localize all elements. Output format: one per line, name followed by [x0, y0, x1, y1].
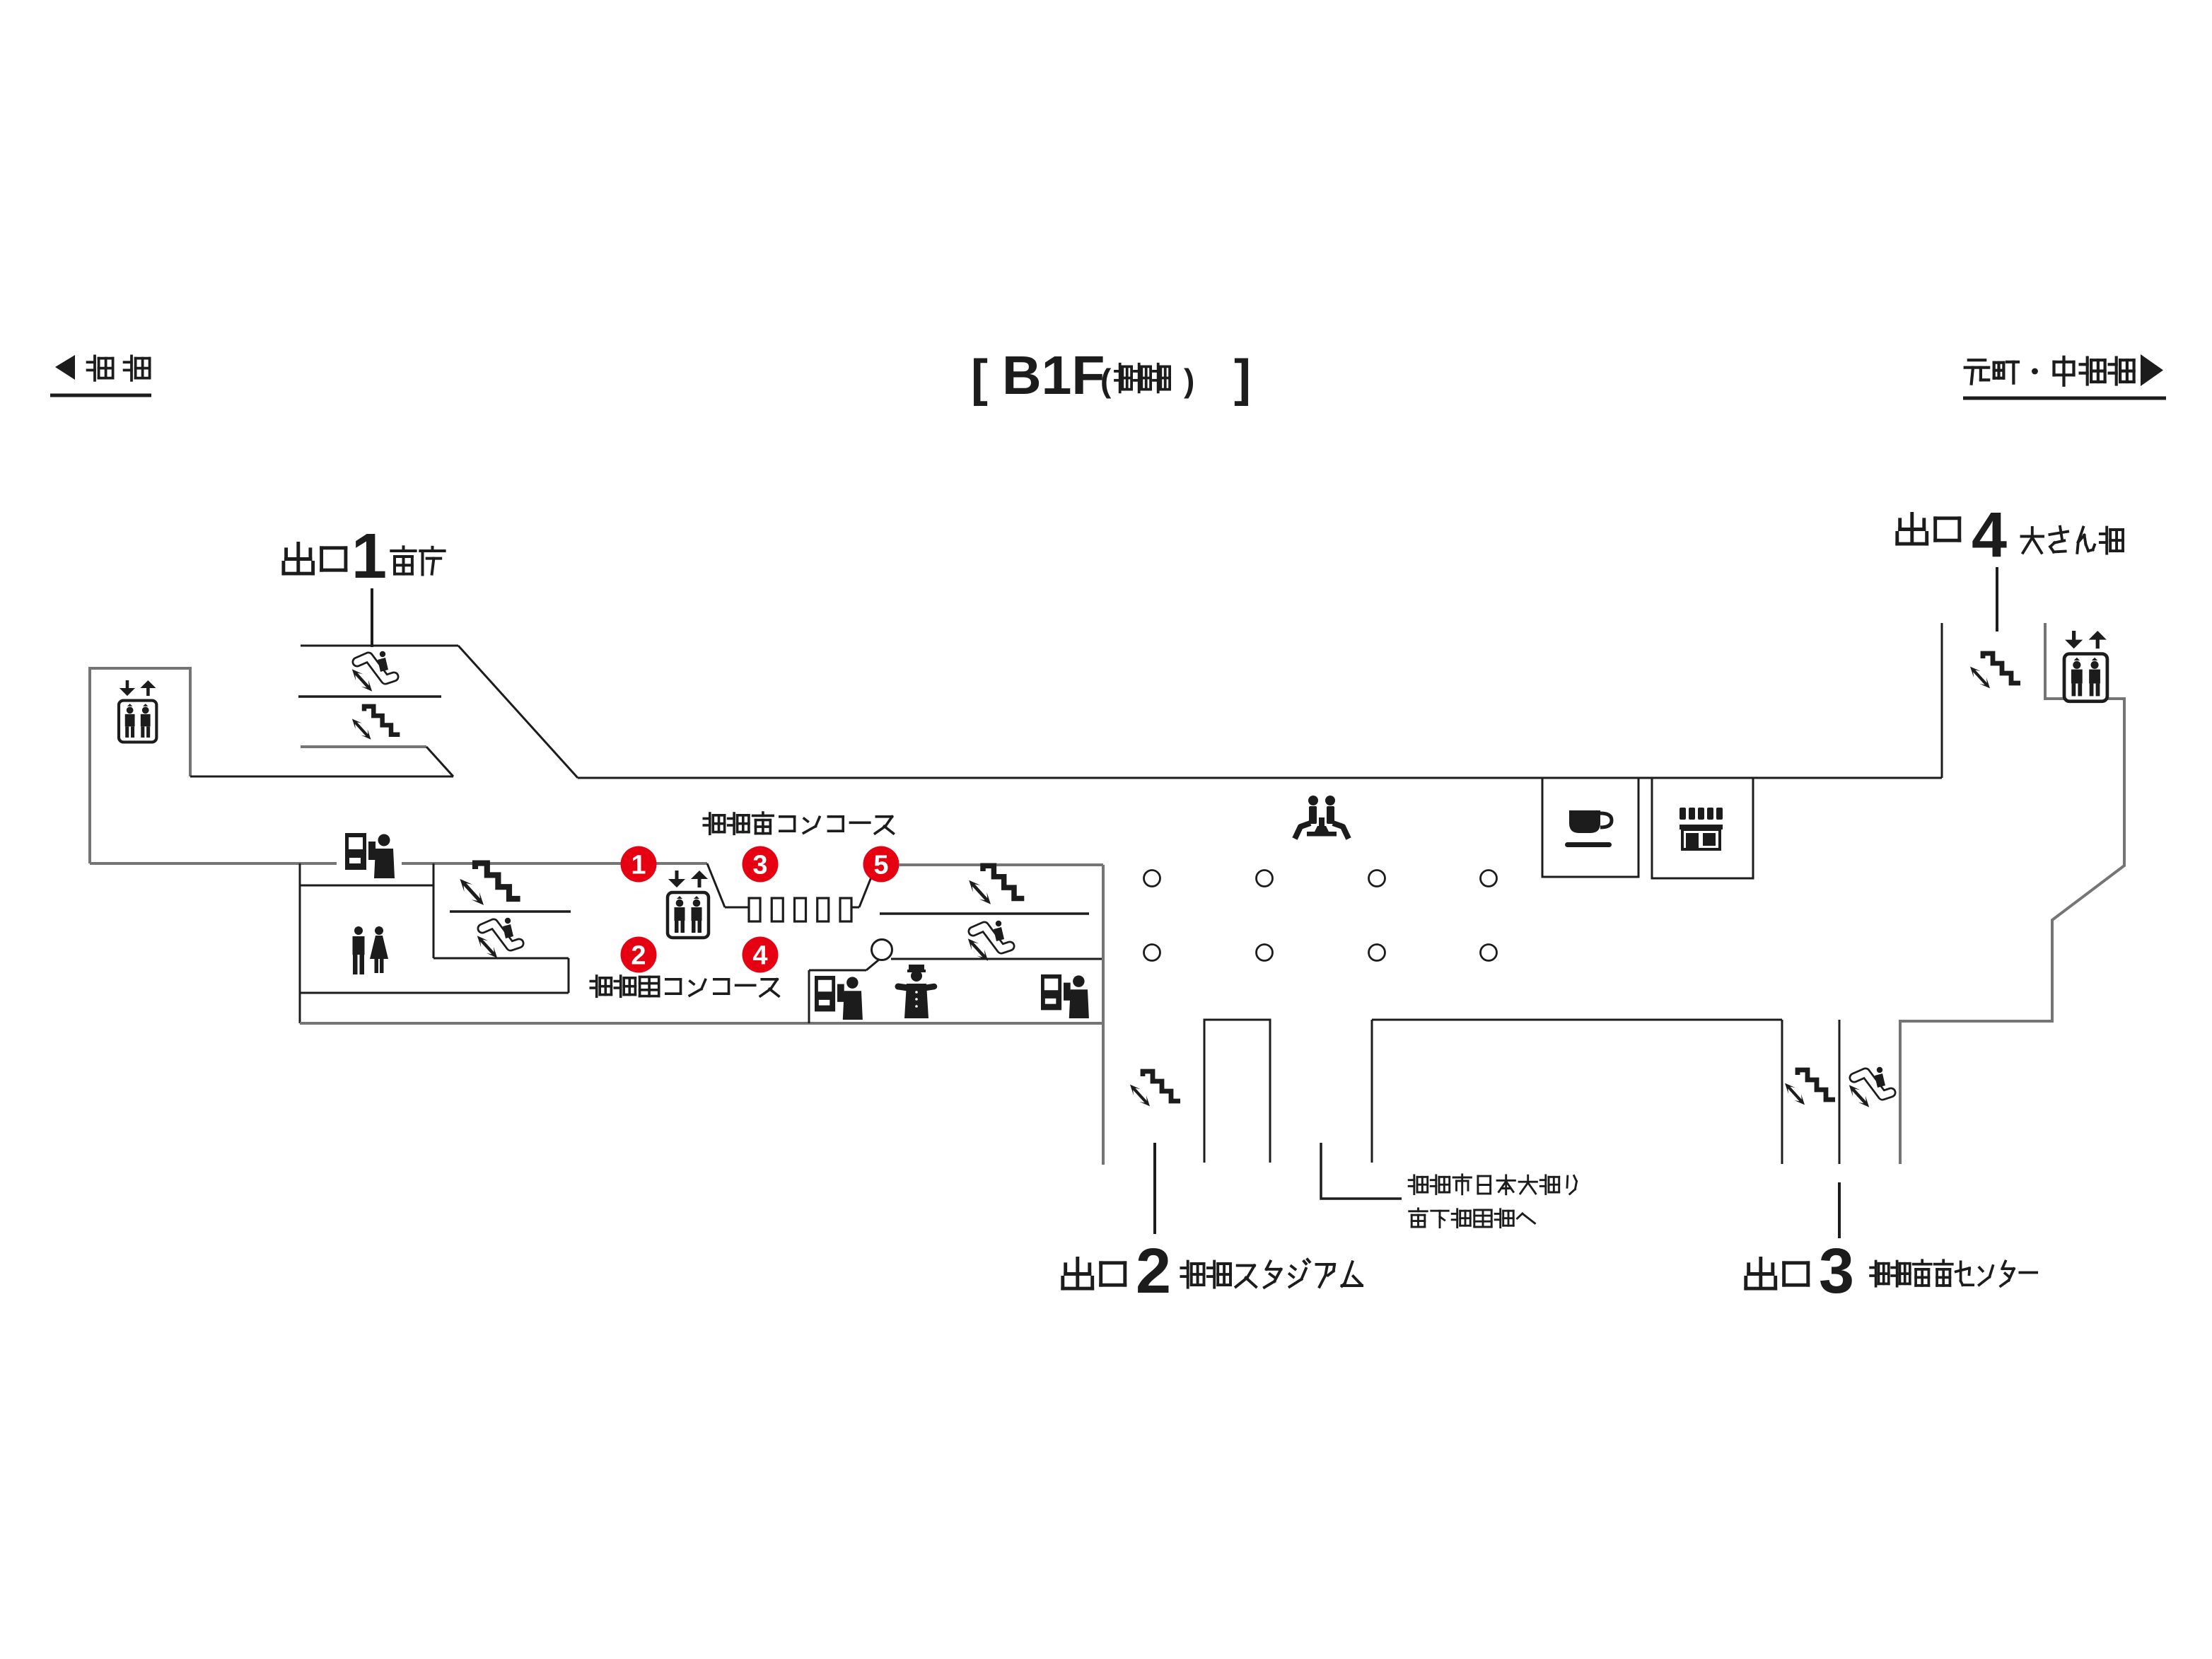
svg-text:5: 5: [873, 851, 888, 880]
svg-text:4: 4: [752, 941, 767, 971]
svg-text:4: 4: [1972, 500, 2007, 571]
svg-text:B1F: B1F: [1002, 345, 1105, 406]
svg-text:]: ]: [1234, 350, 1251, 407]
svg-text:1: 1: [351, 521, 387, 592]
svg-text:[: [: [971, 350, 988, 407]
svg-text:3: 3: [1819, 1236, 1854, 1307]
svg-text:): ): [1184, 362, 1194, 399]
svg-text:(: (: [1100, 362, 1112, 399]
svg-text:2: 2: [1136, 1236, 1171, 1307]
svg-text:3: 3: [752, 851, 767, 880]
svg-text:1: 1: [631, 851, 646, 880]
svg-text:2: 2: [631, 941, 646, 971]
